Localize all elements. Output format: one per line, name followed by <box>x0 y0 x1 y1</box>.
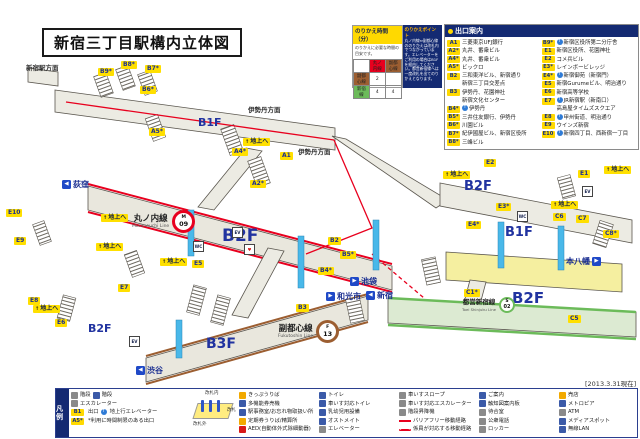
exit-desc: 三菱東京UFJ銀行 <box>462 39 503 47</box>
legend-label: トイレ <box>328 391 344 400</box>
map-exit-e9: E9 <box>14 237 26 245</box>
exit-row: B9*新宿区役所第二分庁舎 <box>542 39 637 47</box>
legend-label: バリアフリー移動経路 <box>413 417 466 426</box>
map-exit-b8: B8* <box>121 61 137 69</box>
exit-guide-icon <box>448 29 453 34</box>
legend-label: 売店 <box>568 391 579 400</box>
map-exit-e7: E7 <box>118 284 130 292</box>
exit-code: E3* <box>542 64 555 71</box>
transfer-points-text: 丸ノ内線⇔副都心線ののりかえは改札内でつながっています。エレベーターをご利用の場… <box>405 39 440 82</box>
legend-title-text: 凡例 <box>56 405 69 421</box>
elevator-mark-icon <box>557 97 563 103</box>
cell-s-m: 4 <box>369 86 385 99</box>
exit-desc: 紀伊國屋ビル、新宿区役所 <box>462 130 527 138</box>
destination-shibuya: ◀渋谷 <box>136 365 163 376</box>
legend-label: 多機能券売機 <box>248 400 280 409</box>
elevator-mark-icon <box>557 72 563 78</box>
transfer-time-table: 丸ノ内線 副都心線 副都心線 2 新宿線 4 4 <box>353 59 402 99</box>
destination-motoyawata: 本八幡▶ <box>566 256 601 267</box>
exit-row: B8*三峰ビル <box>447 139 542 147</box>
exit-desc: 新宿文化センター <box>462 97 505 105</box>
exit-code: B5* <box>447 114 460 121</box>
transfer-time-panel: のりかえ時間（分） のりかえに必要な時間の目安です。 丸ノ内線 副都心線 副都心… <box>352 25 442 88</box>
arrow-right-icon: ▶ <box>350 277 359 286</box>
exit-guide-title: 出口案内 <box>455 26 483 36</box>
exit-guide-right-column: B9*新宿区役所第二分庁舎 E1新宿区役所、花園神社 E2コメ兵ビル E3*レイ… <box>542 39 637 147</box>
exit-desc: 丸井、番衆ビル <box>462 47 500 55</box>
exit-row: 新宿三丁目交差点 <box>447 80 542 88</box>
map-exit-b7: B7* <box>145 65 161 73</box>
legend-label: 車いす対応エスカレーター <box>408 400 472 409</box>
wheelchair-escalator-icon <box>399 400 406 407</box>
exit-code: A4* <box>447 56 460 63</box>
legend-label: 係員が対応する移動経路 <box>413 425 471 434</box>
to-surface-label: 地上へ <box>96 243 123 251</box>
fukutoshin-line-label: 副都心線 Fukutoshin Line F 13 <box>278 320 339 343</box>
cell-f-f <box>385 73 401 86</box>
gate-inside-label: 改札内 <box>205 390 219 396</box>
transfer-time-title: のりかえ時間（分） <box>353 26 402 44</box>
exit-code: E5 <box>542 81 555 88</box>
ticket-gate-icon <box>201 400 204 412</box>
elevator-mark-icon <box>557 114 563 120</box>
stairs-inside-icon <box>71 392 78 399</box>
col-marunouchi: 丸ノ内線 <box>369 60 385 73</box>
map-exit-c7: C7 <box>576 215 589 223</box>
exit-code: B4* <box>447 106 460 113</box>
transfer-points-box: のりかえポイント 丸ノ内線⇔副都心線ののりかえは改札内でつながっています。エレベ… <box>403 25 442 88</box>
elevator-mark-icon <box>462 105 468 111</box>
legend-column-toilets: トイレ 車いす対応トイレ 乳幼児用設備 オストメイト エレベーター <box>319 391 395 435</box>
legend-label: 定期券うりば/精算所 <box>248 417 297 426</box>
to-surface-label: 地上へ <box>551 201 578 209</box>
exit-desc: 伊勢丹 <box>469 105 485 113</box>
staff-route-icon <box>399 429 411 431</box>
arrow-left-icon: ◀ <box>366 291 375 300</box>
exit-desc: 三井住友銀行、伊勢丹 <box>462 114 516 122</box>
legend-left-block: 階段 階段 エスカレーター B1 出口 地上行エレベーター A5* *利用に時間… <box>69 389 191 437</box>
map-exit-c1: C1* <box>464 289 480 297</box>
exit-row: B5*三井住友銀行、伊勢丹 <box>447 114 542 122</box>
exit-desc: 三峰ビル <box>462 139 484 147</box>
exit-desc: ビックロ <box>462 64 484 72</box>
legend-label: 駅事務室/お忘れ物取扱い所 <box>248 408 313 417</box>
map-exit-b5: B5* <box>340 251 356 259</box>
destination-ogikubo: ◀荻窪 <box>62 179 89 190</box>
exit-desc: コメ兵ビル <box>557 56 584 64</box>
page-title-text: 新宿三丁目駅構内立体図 <box>54 34 230 52</box>
map-exit-e4: E4* <box>466 221 481 229</box>
exit-row: E3*レインボービレッジ <box>542 64 637 72</box>
elevator-icon <box>319 426 326 433</box>
legend-label: きっぷうりば <box>248 391 280 400</box>
escalator-icon <box>71 400 78 407</box>
exit-desc: 新宿高等学校 <box>557 89 589 97</box>
exit-desc: 新宿四丁目、西新宿一丁目 <box>564 130 629 138</box>
exit-code: B9* <box>542 40 555 47</box>
exit-row: B6*川園ビル <box>447 122 542 130</box>
gate-outside-label: 改札外 <box>193 421 207 427</box>
floor-label-b2f: B2F <box>464 179 492 194</box>
toei-shinjuku-line-symbol: S 02 <box>499 297 515 313</box>
exit-code: E6 <box>542 89 555 96</box>
legend-label: メトロピア <box>568 400 595 409</box>
exit-desc: 高島屋タイムズスクエア <box>557 105 616 113</box>
exit-row: B2三和東洋ビル、新宿通り <box>447 72 542 80</box>
map-exit-e10: E10 <box>6 209 22 217</box>
line-number: 02 <box>503 305 510 310</box>
elevator-icon: EV <box>129 336 140 347</box>
exit-code: E2 <box>542 56 555 63</box>
exit-chip-sample: B1 <box>71 409 84 416</box>
page-title: 新宿三丁目駅構内立体図 <box>42 28 242 57</box>
transfer-time-table-box: のりかえ時間（分） のりかえに必要な時間の目安です。 丸ノ内線 副都心線 副都心… <box>352 25 403 88</box>
legend-label: ご案内 <box>488 391 504 400</box>
to-surface-label: 地上へ <box>243 138 270 146</box>
exit-desc: 新宿三丁目交差点 <box>462 80 505 88</box>
exit-desc: ウインズ新宿 <box>557 122 589 130</box>
legend-label: AED(自動体外式除細動器) <box>248 425 311 434</box>
destination-shinjuku: ◀新宿 <box>366 290 393 301</box>
shinjuku-station-direction-label: 新宿駅方面 <box>26 62 59 72</box>
map-exit-a2: A2* <box>250 180 266 188</box>
legend-column-tickets: きっぷうりば 多機能券売機 駅事務室/お忘れ物取扱い所 定期券うりば/精算所 A… <box>239 391 315 435</box>
ticket-gate-icon <box>209 400 212 412</box>
locker-icon <box>479 426 486 433</box>
exit-guide-header: 出口案内 <box>445 25 638 37</box>
arrow-left-icon: ◀ <box>62 180 71 189</box>
line-name: 都営新宿線 <box>462 298 496 307</box>
exit-code: B2 <box>447 73 460 80</box>
exit-code: E1 <box>542 48 555 55</box>
marunouchi-line-symbol: M 09 <box>172 210 195 233</box>
arrow-right-icon: ▶ <box>592 257 601 266</box>
to-surface-label: 地上へ <box>443 171 470 179</box>
exit-row: A5*ビックロ <box>447 64 542 72</box>
map-exit-a1: A1 <box>280 152 293 160</box>
exit-row: E2コメ兵ビル <box>542 56 637 64</box>
media-spot-icon <box>559 418 566 425</box>
floor-label-b3f: B3F <box>206 336 236 352</box>
station-structure-map-page: 新宿三丁目駅構内立体図 のりかえ時間（分） のりかえに必要な時間の目安です。 丸… <box>0 0 640 439</box>
exit-desc: JR新宿駅（新南口） <box>564 97 612 105</box>
line-number: 13 <box>323 331 332 338</box>
exit-desc: 伊勢丹、花園神社 <box>462 89 505 97</box>
legend-title: 凡例 <box>56 389 69 437</box>
map-exit-e3: E3* <box>496 203 511 211</box>
exit-row: E7JR新宿駅（新南口） <box>542 97 637 105</box>
exit-desc: 丸井、番衆ビル <box>462 56 500 64</box>
map-exit-e5: E5 <box>192 260 204 268</box>
floor-label-b2f: B2F <box>512 289 544 307</box>
stairs-outside-icon <box>93 392 100 399</box>
atm-icon <box>559 409 566 416</box>
exit-guide-panel: 出口案内 A1三菱東京UFJ銀行 A2*丸井、番衆ビル A4*丸井、番衆ビル A… <box>444 24 639 150</box>
exit-code: E4* <box>542 73 555 80</box>
map-exit-e2: E2 <box>484 159 496 167</box>
legend-gate-diagram: 改札内 改札 改札外 <box>191 389 237 437</box>
waiting-room-icon <box>479 409 486 416</box>
wheelchair-toilet-icon <box>319 400 326 407</box>
map-exit-e8: E8 <box>28 297 40 305</box>
cell-s-f: 4 <box>385 86 401 99</box>
exit-guide-left-column: A1三菱東京UFJ銀行 A2*丸井、番衆ビル A4*丸井、番衆ビル A5*ビック… <box>447 39 542 147</box>
aed-icon <box>239 426 246 433</box>
map-exit-e6: E6 <box>55 319 67 327</box>
legend-label: 車いす対応トイレ <box>328 400 370 409</box>
row-shinjuku-line: 新宿線 <box>354 86 370 99</box>
legend-label: 階段 <box>80 391 91 400</box>
exit-desc: 新宿区役所第二分庁舎 <box>564 39 618 47</box>
exit-row: E6新宿高等学校 <box>542 89 637 97</box>
legend-column-shops: 売店 メトロピア ATM メディアスポット 無線LAN <box>559 391 635 435</box>
exit-row: B3伊勢丹、花園神社 <box>447 89 542 97</box>
exit-code: A5* <box>447 64 460 71</box>
aed-icon: ♥ <box>244 244 255 255</box>
exit-row: A4*丸井、番衆ビル <box>447 56 542 64</box>
destination-wakoshi: ▶和光市 <box>326 291 361 302</box>
destination-label: 本八幡 <box>566 256 590 267</box>
legend-label: 階段昇降機 <box>408 408 435 417</box>
toilet-icon <box>319 392 326 399</box>
destination-ikebukuro: ▶池袋 <box>350 276 377 287</box>
toilet-icon: WC <box>517 211 528 222</box>
cell-f-m: 2 <box>369 73 385 86</box>
transfer-time-subtitle: のりかえに必要な時間の目安です。 <box>353 44 402 58</box>
exit-row: 新宿文化センター <box>447 97 542 105</box>
map-exit-c5: C5 <box>568 315 581 323</box>
exit-row: E9ウインズ新宿 <box>542 122 637 130</box>
exit-code: B3 <box>447 89 460 96</box>
destination-label: 渋谷 <box>147 365 163 376</box>
map-exit-b6: B6* <box>140 86 156 94</box>
to-surface-label: 地上へ <box>33 305 60 313</box>
exit-desc: 三和東洋ビル、新宿通り <box>462 72 521 80</box>
pass-office-icon <box>239 418 246 425</box>
elevator-icon: EV <box>232 227 243 238</box>
kiosk-icon <box>559 392 566 399</box>
isetan-direction-label: 伊勢丹方面 <box>298 146 331 156</box>
exit-row: E4*新宿御苑（新宿門） <box>542 72 637 80</box>
floor-label-b2f: B2F <box>88 322 112 335</box>
exit-desc: 甲州街道、明治通り <box>564 114 613 122</box>
legend-label: オストメイト <box>328 417 360 426</box>
line-number: 09 <box>179 221 188 228</box>
exit-desc: 新宿区役所、花園神社 <box>557 47 611 55</box>
exit-row: E10新宿四丁目、西新宿一丁目 <box>542 130 637 138</box>
destination-label: 和光市 <box>337 291 361 302</box>
legend-label: 公衆電話 <box>488 417 509 426</box>
map-exit-c8: C8* <box>603 230 619 238</box>
exit-desc: レインボービレッジ <box>557 64 606 72</box>
legend-label: ロッカー <box>488 425 509 434</box>
destination-label: 荻窪 <box>73 179 89 190</box>
toilet-icon: WC <box>193 241 204 252</box>
exit-code: A1 <box>447 40 460 47</box>
exit-code: E8 <box>542 114 555 121</box>
tactile-map-icon <box>479 400 486 407</box>
exit-code: B8* <box>447 139 460 146</box>
exit-desc: 川園ビル <box>462 122 484 130</box>
map-exit-a5: A5* <box>149 128 165 136</box>
exit-code: E9 <box>542 122 555 129</box>
map-exit-b9: B9* <box>98 68 114 76</box>
legend-label: 階段 <box>102 391 113 400</box>
legend-label: 地上行エレベーター <box>110 408 158 417</box>
gate-label: 改札 <box>227 407 236 413</box>
isetan-direction-label: 伊勢丹方面 <box>248 104 281 114</box>
exit-row: A2*丸井、番衆ビル <box>447 47 542 55</box>
map-exit-b4: B4* <box>318 267 334 275</box>
data-current-as-of: [2013.3.31現在] <box>585 378 636 388</box>
legend-label: 無線LAN <box>568 425 589 434</box>
line-name: 丸ノ内線 <box>132 215 169 224</box>
wheelchair-slope-icon <box>399 392 406 399</box>
exit-row: B4*伊勢丹 <box>447 105 542 113</box>
legend-column-services: ご案内 触知図案内板 待合室 公衆電話 ロッカー <box>479 391 555 435</box>
legend-label: エレベーター <box>328 425 360 434</box>
destination-label: 新宿 <box>377 290 393 301</box>
ticket-machine-icon <box>239 400 246 407</box>
legend-label: ATM <box>568 408 579 417</box>
station-office-icon <box>239 409 246 416</box>
exit-row: E5新宿Gurumeビル、明治通り <box>542 80 637 88</box>
to-surface-label: 地上へ <box>101 214 128 222</box>
exit-code: B6* <box>447 122 460 129</box>
exit-code: A2* <box>447 48 460 55</box>
row-fukutoshin: 副都心線 <box>354 73 370 86</box>
metropia-icon <box>559 400 566 407</box>
col-fukutoshin: 副都心線 <box>385 60 401 73</box>
exit-code: E10 <box>542 131 555 138</box>
exit-row: E8甲州街道、明治通り <box>542 114 637 122</box>
floor-label-b1f: B1F <box>198 116 222 129</box>
exit-code: B7* <box>447 131 460 138</box>
floor-label-b1f: B1F <box>505 225 533 240</box>
barrier-free-route-icon <box>399 420 411 422</box>
elevator-mark-icon <box>101 409 107 415</box>
nursery-icon <box>319 409 326 416</box>
stair-lift-icon <box>399 409 406 416</box>
arrow-left-icon: ◀ <box>136 366 145 375</box>
to-surface-label: 地上へ <box>604 166 631 174</box>
ticket-office-icon <box>239 392 246 399</box>
to-surface-label: 地上へ <box>160 258 187 266</box>
map-exit-b3: B3 <box>296 304 309 312</box>
marunouchi-line-label: 丸ノ内線 Marunouchi Line M 09 <box>132 210 195 233</box>
line-name-en: Toei Shinjuku Line <box>462 307 496 312</box>
legend-column-accessibility: 車いすスロープ 車いす対応エスカレーター 階段昇降機 バリアフリー移動経路 係員… <box>399 391 475 435</box>
map-exit-b2: B2 <box>328 237 341 245</box>
line-name-en: Fukutoshin Line <box>278 334 313 339</box>
legend-label: 触知図案内板 <box>488 400 520 409</box>
legend-label: 車いすスロープ <box>408 391 445 400</box>
fukutoshin-line-symbol: F 13 <box>316 320 339 343</box>
exit-code: E7 <box>542 98 555 105</box>
elevator-icon: EV <box>582 186 593 197</box>
exit-row: B7*紀伊國屋ビル、新宿区役所 <box>447 130 542 138</box>
line-name-en: Marunouchi Line <box>132 224 169 229</box>
toei-shinjuku-line-label: 都営新宿線 Toei Shinjuku Line S 02 <box>462 297 515 313</box>
legend-label: エスカレーター <box>80 400 117 409</box>
public-phone-icon <box>479 418 486 425</box>
exit-row: E1新宿区役所、花園神社 <box>542 47 637 55</box>
elevator-mark-icon <box>557 130 563 136</box>
legend-label: メディアスポット <box>568 417 610 426</box>
map-exit-c6: C6 <box>553 213 566 221</box>
destination-label: 池袋 <box>361 276 377 287</box>
ostomate-icon <box>319 418 326 425</box>
legend-label: 乳幼児用設備 <box>328 408 360 417</box>
map-exit-e1: E1 <box>578 170 590 178</box>
legend-label: 出口 <box>88 408 99 417</box>
exit-desc: 新宿Gurumeビル、明治通り <box>557 80 627 88</box>
exit-row: A1三菱東京UFJ銀行 <box>447 39 542 47</box>
line-name: 副都心線 <box>278 325 313 334</box>
legend-label: *利用に時間制限のある出口 <box>88 417 154 426</box>
wireless-lan-icon <box>559 426 566 433</box>
arrow-right-icon: ▶ <box>326 292 335 301</box>
information-icon <box>479 392 486 399</box>
exit-row: 高島屋タイムズスクエア <box>542 105 637 113</box>
ticket-gate-icon <box>217 400 220 412</box>
exit-desc: 新宿御苑（新宿門） <box>564 72 613 80</box>
elevator-mark-icon <box>557 39 563 45</box>
legend-label: 待合室 <box>488 408 504 417</box>
restricted-exit-chip-sample: A5* <box>71 418 84 425</box>
legend-panel: 凡例 階段 階段 エスカレーター B1 出口 地上行エレベーター A5* *利用… <box>55 388 638 438</box>
map-exit-a4: A4* <box>232 148 248 156</box>
